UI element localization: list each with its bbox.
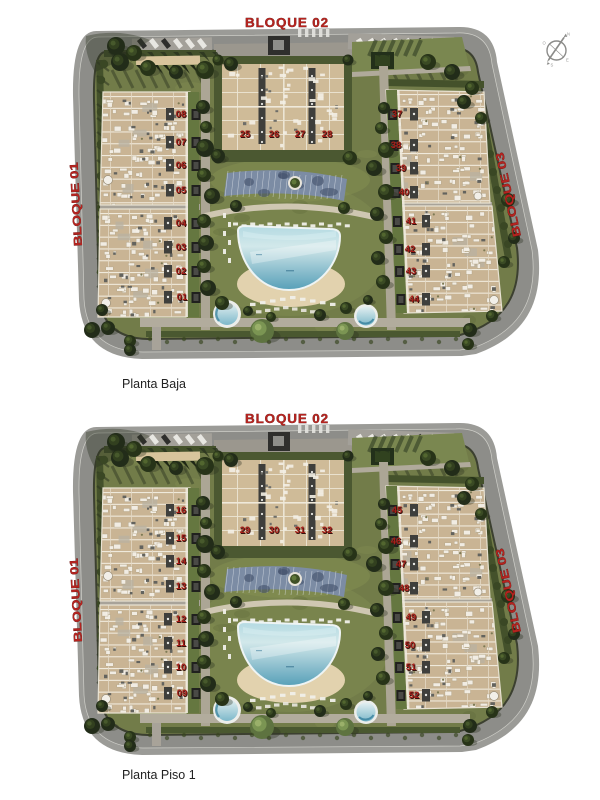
svg-text:46: 46 [391, 536, 402, 547]
svg-text:04: 04 [176, 218, 187, 229]
svg-text:31: 31 [295, 525, 306, 536]
svg-text:12: 12 [176, 614, 187, 625]
svg-text:BLOQUE 02: BLOQUE 02 [245, 16, 329, 30]
svg-text:11: 11 [176, 638, 187, 649]
svg-text:29: 29 [240, 525, 251, 536]
svg-text:E: E [566, 58, 569, 63]
svg-text:03: 03 [176, 242, 187, 253]
svg-text:52: 52 [409, 690, 420, 701]
svg-text:37: 37 [392, 109, 403, 120]
svg-text:10: 10 [176, 662, 187, 673]
svg-text:16: 16 [176, 505, 187, 516]
svg-text:02: 02 [176, 266, 187, 277]
svg-text:38: 38 [391, 140, 402, 151]
svg-text:41: 41 [406, 216, 417, 227]
svg-text:Planta Piso 1: Planta Piso 1 [122, 768, 196, 782]
svg-text:28: 28 [322, 129, 333, 140]
svg-text:49: 49 [406, 612, 417, 623]
svg-text:27: 27 [295, 129, 306, 140]
svg-text:Planta Baja: Planta Baja [122, 377, 186, 391]
svg-text:05: 05 [176, 185, 187, 196]
svg-text:39: 39 [396, 163, 407, 174]
svg-text:S: S [551, 63, 554, 68]
svg-text:25: 25 [240, 129, 251, 140]
svg-text:14: 14 [176, 556, 187, 567]
svg-text:51: 51 [406, 662, 417, 673]
svg-text:O: O [543, 41, 547, 46]
svg-text:13: 13 [176, 581, 187, 592]
svg-text:42: 42 [405, 244, 416, 255]
svg-text:01: 01 [177, 292, 188, 303]
svg-text:15: 15 [176, 533, 187, 544]
svg-text:09: 09 [177, 688, 188, 699]
svg-text:26: 26 [269, 129, 280, 140]
svg-text:30: 30 [269, 525, 280, 536]
svg-text:06: 06 [176, 160, 187, 171]
svg-text:BLOQUE 02: BLOQUE 02 [245, 412, 329, 426]
svg-text:50: 50 [405, 640, 416, 651]
svg-text:47: 47 [396, 559, 407, 570]
svg-text:40: 40 [399, 187, 410, 198]
svg-text:45: 45 [392, 505, 403, 516]
svg-text:32: 32 [322, 525, 333, 536]
svg-text:48: 48 [399, 583, 410, 594]
svg-text:07: 07 [176, 137, 187, 148]
svg-text:44: 44 [409, 294, 420, 305]
svg-text:08: 08 [176, 109, 187, 120]
svg-text:N: N [567, 32, 570, 37]
svg-text:43: 43 [406, 266, 417, 277]
